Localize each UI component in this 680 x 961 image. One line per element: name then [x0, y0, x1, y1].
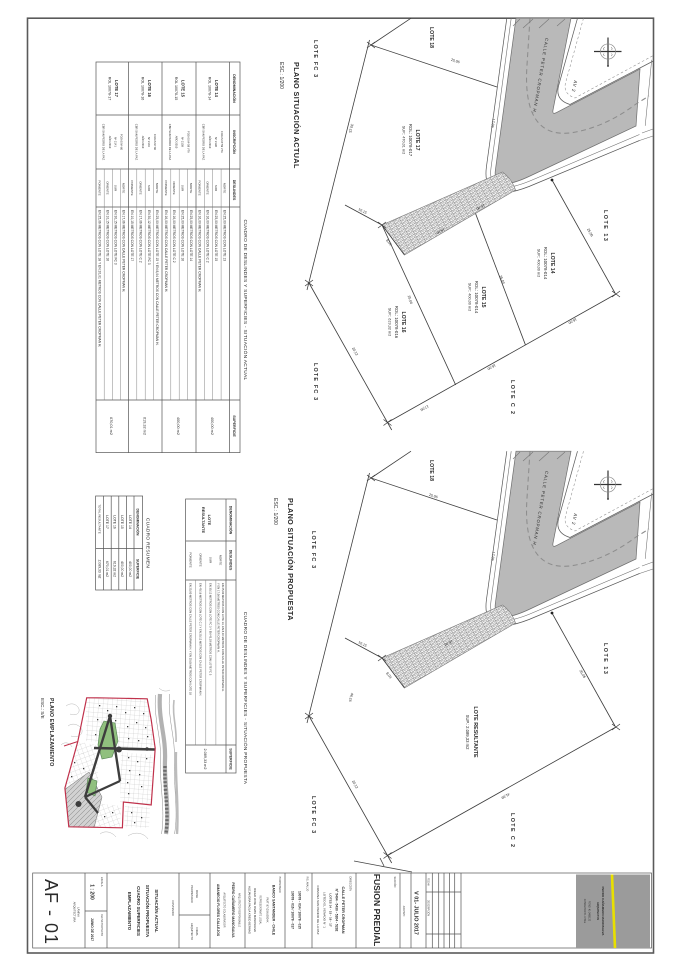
svg-text:Nº 2141: Nº 2141: [114, 137, 118, 147]
svg-text:CONCEPCION - CHILE: CONCEPCION - CHILE: [583, 899, 585, 924]
svg-text:DENOMINACIÓN: DENOMINACIÓN: [136, 509, 141, 536]
svg-text:CBR SAN PEDRO DE LA PAZ: CBR SAN PEDRO DE LA PAZ: [102, 124, 106, 161]
svg-text:SUR: SUR: [114, 185, 118, 192]
svg-text:SUR: SUR: [147, 185, 151, 192]
svg-text:BANCO SANTANDER - CHILE: BANCO SANTANDER - CHILE: [272, 885, 276, 936]
svg-text:DENOMINACIÓN: DENOMINACIÓN: [229, 506, 234, 535]
svg-text:EN 10,15 METROS CON LOTE 17: EN 10,15 METROS CON LOTE 17: [130, 210, 134, 261]
svg-text:PROPIETARIO: PROPIETARIO: [278, 877, 281, 893]
svg-text:FIRMA: FIRMA: [195, 890, 199, 898]
svg-text:CUADRO SUPERFICIES: CUADRO SUPERFICIES: [136, 886, 141, 936]
svg-text:LOTE 15: LOTE 15: [181, 80, 186, 98]
svg-text:NORTE: NORTE: [223, 183, 227, 193]
svg-text:EN 49,16 METROS CON LOTE C 2 Y: EN 49,16 METROS CON LOTE C 2 Y EN 20,12 …: [199, 583, 203, 696]
svg-text:670,01 m2: 670,01 m2: [109, 417, 113, 435]
svg-text:CBR SAN PEDRO DE LA PAZ: CBR SAN PEDRO DE LA PAZ: [202, 124, 206, 161]
svg-text:PONIENTE: PONIENTE: [97, 180, 101, 195]
svg-text:FONO: 41-2466133: FONO: 41-2466133: [588, 901, 590, 922]
svg-text:2.089,33 m2: 2.089,33 m2: [203, 748, 207, 769]
svg-text:ARQUITECTOS: ARQUITECTOS: [596, 902, 599, 920]
svg-text:LOTE 18: LOTE 18: [428, 460, 434, 481]
svg-text:EMPLAZAMIENTO: EMPLAZAMIENTO: [127, 892, 132, 931]
svg-text:LOTE FC 3: LOTE FC 3: [310, 796, 316, 834]
svg-text:DENOMINACIÓN: DENOMINACIÓN: [232, 74, 237, 103]
svg-text:CBR SAN PEDRO DE LA PAZ: CBR SAN PEDRO DE LA PAZ: [135, 124, 139, 161]
svg-text:PONIENTE: PONIENTE: [130, 180, 134, 195]
svg-text:400,00 m2: 400,00 m2: [120, 561, 124, 577]
svg-text:LOTES 14 - 15 - 16 - 17: LOTES 14 - 15 - 16 - 17: [329, 893, 333, 926]
svg-text:CONTENIDO: CONTENIDO: [171, 900, 175, 916]
svg-text:1 : 200: 1 : 200: [89, 884, 95, 900]
svg-text:SUP.: 470,01 m2: SUP.: 470,01 m2: [402, 126, 406, 154]
svg-text:DESCRIPCIÓN: DESCRIPCIÓN: [427, 900, 430, 916]
svg-text:EN 30,15 METROS CON LOTE FC 3: EN 30,15 METROS CON LOTE FC 3: [114, 210, 118, 265]
svg-text:ESCALA: ESCALA: [100, 877, 103, 887]
svg-text:SITUACIÓN ACTUAL: SITUACIÓN ACTUAL: [154, 889, 159, 933]
svg-text:AMANECIO FLORES CALLEJOS: AMANECIO FLORES CALLEJOS: [216, 884, 220, 937]
svg-text:LOTE 13: LOTE 13: [602, 210, 608, 242]
svg-text:ORIENTE: ORIENTE: [206, 181, 210, 194]
svg-text:PONIENTE: PONIENTE: [188, 552, 192, 567]
svg-text:LÁMINA: LÁMINA: [77, 907, 81, 917]
svg-text:619,32 m2: 619,32 m2: [143, 417, 147, 435]
svg-text:Nº 2138: Nº 2138: [214, 137, 218, 147]
svg-text:EN 10,15 METROS CON LOTE 16: EN 10,15 METROS CON LOTE 16: [106, 210, 110, 261]
svg-text:SITUACIÓN PROPUESTA: SITUACIÓN PROPUESTA: [145, 885, 150, 938]
svg-text:PLANO SITUACIÓN PROPUESTA: PLANO SITUACIÓN PROPUESTA: [286, 498, 295, 621]
svg-text:400,00 m2: 400,00 m2: [210, 417, 214, 435]
svg-text:LOTE 14: LOTE 14: [214, 80, 219, 98]
svg-text:PEDRO CAÑAMERO MANOSALVA: PEDRO CAÑAMERO MANOSALVA: [231, 882, 236, 938]
svg-text:SUPERFICIE: SUPERFICIE: [229, 748, 233, 770]
svg-text:ORIENTE: ORIENTE: [106, 181, 110, 194]
svg-text:Y EN 17,06 METROS CON CALLE PE: Y EN 17,06 METROS CON CALLE PETER CROPMA…: [217, 583, 221, 653]
svg-text:SUR: SUR: [181, 185, 185, 192]
svg-text:ARQUITECTO COLABORADOR: ARQUITECTO COLABORADOR: [223, 893, 226, 928]
svg-text:AF - 01: AF - 01: [41, 879, 61, 945]
svg-text:LOTE 16: LOTE 16: [113, 515, 117, 529]
svg-text:PLANO SITUACIÓN ACTUAL: PLANO SITUACIÓN ACTUAL: [292, 62, 301, 169]
svg-text:ARQUITECTURA: ARQUITECTURA: [73, 902, 77, 923]
svg-text:CBR SAN PEDRO DE LA PAZ: CBR SAN PEDRO DE LA PAZ: [168, 124, 172, 161]
svg-text:CUADRO DE DESLINDES Y SUPERFIC: CUADRO DE DESLINDES Y SUPERFICIES - SITU…: [242, 612, 249, 785]
svg-text:LOTE C 2: LOTE C 2: [509, 380, 515, 415]
svg-text:ESC.: 1/200: ESC.: 1/200: [272, 498, 278, 525]
svg-text:FIRMA: FIRMA: [195, 927, 199, 935]
svg-text:SECCIÓN: SECCIÓN: [393, 877, 396, 888]
svg-text:EN 16,00 METROS CON LOTE C 2: EN 16,00 METROS CON LOTE C 2: [172, 210, 176, 263]
svg-text:LOTE 14: LOTE 14: [549, 252, 555, 273]
svg-text:SUPERFICIE: SUPERFICIE: [232, 415, 236, 437]
svg-text:EN 30,12 METROS CON LOTE FC 3: EN 30,12 METROS CON LOTE FC 3: [147, 210, 151, 265]
svg-text:ROL: 10078-016: ROL: 10078-016: [394, 306, 399, 339]
svg-text:EN 25,00 METROS CON LOTE 13: EN 25,00 METROS CON LOTE 13: [223, 210, 227, 261]
svg-text:RUT 97.036.000-K: RUT 97.036.000-K: [266, 898, 270, 923]
svg-text:SUP.: 619,32 m2: SUP.: 619,32 m2: [388, 308, 392, 336]
svg-text:EN 30,12 METROS CON LOTE FC 3: EN 30,12 METROS CON LOTE FC 3 Y EN 45,19…: [209, 583, 213, 676]
svg-text:EN 25,00 METROS CON LOTE 15 Y: EN 25,00 METROS CON LOTE 15 Y EN 8,04 ME…: [155, 210, 159, 346]
svg-text:ROL 10078-16: ROL 10078-16: [141, 77, 145, 100]
svg-text:V 01- JULIO 2017: V 01- JULIO 2017: [413, 891, 419, 935]
svg-text:ALEJANDRA PAOLA KREID BERNAO: ALEJANDRA PAOLA KREID BERNAO: [248, 886, 252, 935]
svg-text:LOTE 15: LOTE 15: [120, 515, 124, 529]
svg-text:ROL 10078-14: ROL 10078-14: [208, 77, 212, 100]
svg-text:Nº 2139: Nº 2139: [181, 137, 185, 147]
svg-text:FUSION PREDIAL: FUSION PREDIAL: [372, 874, 382, 947]
svg-text:ROL: 10078-017: ROL: 10078-017: [408, 124, 413, 157]
svg-text:RESULTANTE: RESULTANTE: [201, 507, 206, 534]
svg-text:ORIENTE: ORIENTE: [199, 553, 203, 566]
svg-text:ORIENTE: ORIENTE: [138, 181, 142, 194]
svg-text:2.089,33 m2: 2.089,33 m2: [97, 560, 101, 579]
svg-text:FOJAS Nº 59 VTA: FOJAS Nº 59 VTA: [220, 131, 224, 153]
svg-text:PONIENTE: PONIENTE: [197, 180, 201, 195]
svg-text:NORTE: NORTE: [155, 183, 159, 193]
svg-text:400,00 m2: 400,00 m2: [176, 417, 180, 435]
svg-text:10078 - 014 / 10078 - 015: 10078 - 014 / 10078 - 015: [298, 891, 302, 929]
svg-text:ROL: 10078-014: ROL: 10078-014: [474, 281, 479, 314]
svg-text:SUR: SUR: [209, 557, 213, 564]
svg-text:LOTE FC 3: LOTE FC 3: [310, 531, 316, 569]
svg-text:EN 25,06 METROS CON LOTE 18 Y: EN 25,06 METROS CON LOTE 18 Y EN 20,01 M…: [97, 210, 101, 347]
svg-text:EN 16,00 METROS CON CALLE PETE: EN 16,00 METROS CON CALLE PETER CROPMAN …: [197, 210, 201, 292]
svg-text:ROL 10078-17: ROL 10078-17: [108, 77, 112, 100]
svg-text:EN 25,00 METROS CON CALLE PETE: EN 25,00 METROS CON CALLE PETER CROPMAN …: [188, 583, 192, 695]
svg-text:ORIENTE: ORIENTE: [172, 181, 176, 194]
svg-text:619,32 m2: 619,32 m2: [113, 561, 117, 577]
svg-text:670,01 m2: 670,01 m2: [105, 561, 109, 577]
svg-text:ESC.: S/E: ESC.: S/E: [40, 698, 45, 719]
svg-text:FECHA: FECHA: [427, 878, 430, 886]
svg-text:LOTE RESULTANTE: LOTE RESULTANTE: [472, 706, 478, 758]
svg-text:FOJAS Nº 60: FOJAS Nº 60: [153, 134, 157, 151]
svg-text:10078 - 016 / 10078 - 017: 10078 - 016 / 10078 - 017: [291, 891, 295, 929]
svg-text:LOTE 18: LOTE 18: [428, 27, 434, 48]
svg-text:PLANO EMPLAZAMIENTO: PLANO EMPLAZAMIENTO: [48, 698, 54, 767]
svg-text:EN 16,00 METROS CON CALLE PETE: EN 16,00 METROS CON CALLE PETER CROPMAN …: [164, 210, 168, 292]
svg-text:EN 25,00 METROS CON LOTE 13, E: EN 25,00 METROS CON LOTE 13, EN 8,04 MET…: [221, 583, 225, 692]
svg-text:TOTAL RESULTANTE: TOTAL RESULTANTE: [97, 504, 101, 534]
svg-text:NORTE: NORTE: [122, 183, 126, 193]
svg-text:CUADRO RESUMEN: CUADRO RESUMEN: [145, 518, 151, 569]
svg-text:EN 16,00 METROS CON LOTE C 2: EN 16,00 METROS CON LOTE C 2: [206, 210, 210, 263]
svg-text:LOTE FC 3: LOTE FC 3: [312, 40, 318, 78]
svg-text:LOTE 17: LOTE 17: [414, 129, 420, 150]
svg-text:SUR: SUR: [214, 185, 218, 192]
svg-text:NORTE: NORTE: [189, 183, 193, 193]
svg-text:Nº 2140: Nº 2140: [147, 137, 151, 147]
svg-text:EN 25,00 METROS CON LOTE 15: EN 25,00 METROS CON LOTE 15: [214, 210, 218, 261]
svg-text:ROL AVALÚO: ROL AVALÚO: [306, 877, 309, 892]
svg-text:EN 17,06 METROS CON LOTE C 2: EN 17,06 METROS CON LOTE C 2: [138, 210, 142, 263]
svg-text:ROL: 10078-014: ROL: 10078-014: [543, 247, 548, 280]
svg-text:PEDRO CAÑAMERO MANOSALVA: PEDRO CAÑAMERO MANOSALVA: [601, 887, 606, 937]
svg-text:FOJAS Nº 59 VTA: FOJAS Nº 59 VTA: [187, 131, 191, 153]
svg-text:FOJAS Nº 60: FOJAS Nº 60: [120, 134, 124, 151]
svg-text:LOTE 15: LOTE 15: [480, 286, 486, 307]
svg-text:EN 25,00 METROS CON LOTE 14: EN 25,00 METROS CON LOTE 14: [189, 210, 193, 261]
svg-text:EN 17,06 METROS CON CALLE PETE: EN 17,06 METROS CON CALLE PETER CROPMAN …: [122, 210, 126, 292]
svg-text:LOTE: LOTE: [207, 515, 212, 526]
svg-text:LOTE 13: LOTE 13: [602, 643, 608, 675]
svg-text:INSCRIPCIÓN: INSCRIPCIÓN: [232, 130, 237, 154]
svg-text:LOTE 16: LOTE 16: [147, 80, 152, 98]
svg-text:LOTE 17: LOTE 17: [114, 80, 119, 98]
svg-text:SUPERFICIE: SUPERFICIE: [136, 559, 140, 580]
svg-text:N° 5404 - 5430 - 5204 - 5292: N° 5404 - 5430 - 5204 - 5292: [335, 889, 339, 932]
svg-text:ARQUITECTO RESPONSABLE: ARQUITECTO RESPONSABLE: [238, 893, 241, 928]
svg-text:LOTE C 2: LOTE C 2: [509, 813, 515, 848]
svg-text:ARCHIVO: ARCHIVO: [402, 906, 405, 917]
svg-text:PROPIETARIO: PROPIETARIO: [190, 885, 194, 903]
svg-text:400,00 m2: 400,00 m2: [128, 561, 132, 577]
svg-text:SUP.: 2.089,33 m2: SUP.: 2.089,33 m2: [465, 715, 470, 751]
svg-text:CALLE PETER CROPMAN: CALLE PETER CROPMAN: [341, 886, 345, 933]
svg-text:DESLINDES: DESLINDES: [229, 550, 233, 571]
svg-text:REPRESENTANTE LEGAL: REPRESENTANTE LEGAL: [259, 895, 262, 925]
svg-text:ESC.: 1/200: ESC.: 1/200: [278, 62, 284, 89]
svg-text:FECHA PROYECTO: FECHA PROYECTO: [100, 914, 103, 936]
svg-text:SUP.: 400,00 m2: SUP.: 400,00 m2: [468, 283, 472, 311]
svg-text:NORTE: NORTE: [219, 555, 223, 565]
svg-text:DIEGO JOSE RIVAS MANOSALVA: DIEGO JOSE RIVAS MANOSALVA: [253, 888, 257, 932]
svg-text:ARQUITECTO: ARQUITECTO: [190, 923, 194, 940]
svg-text:LOTE FC 3: LOTE FC 3: [312, 363, 318, 401]
svg-text:ROL 10078-15: ROL 10078-15: [174, 77, 178, 100]
svg-text:DESLINDES: DESLINDES: [232, 180, 236, 201]
svg-text:LOTEO EL VENADO N° 1: LOTEO EL VENADO N° 1: [323, 892, 327, 928]
svg-text:PONIENTE: PONIENTE: [164, 180, 168, 195]
svg-text:JUNIO DE 2017: JUNIO DE 2017: [90, 918, 94, 941]
svg-text:LOTE 17: LOTE 17: [105, 515, 109, 529]
svg-text:LOTE 16: LOTE 16: [400, 311, 406, 332]
svg-text:LOTE 14: LOTE 14: [128, 515, 132, 529]
svg-text:SUP.: 400,00 m2: SUP.: 400,00 m2: [537, 249, 541, 277]
svg-text:COMUNA SAN PEDRO DE LA PAZ: COMUNA SAN PEDRO DE LA PAZ: [316, 886, 320, 935]
svg-text:CUADRO DE DESLINDES Y SUPERFIC: CUADRO DE DESLINDES Y SUPERFICIES - SITU…: [242, 220, 249, 381]
svg-text:EN 25,00 METROS CON LOTE 16: EN 25,00 METROS CON LOTE 16: [181, 210, 185, 261]
